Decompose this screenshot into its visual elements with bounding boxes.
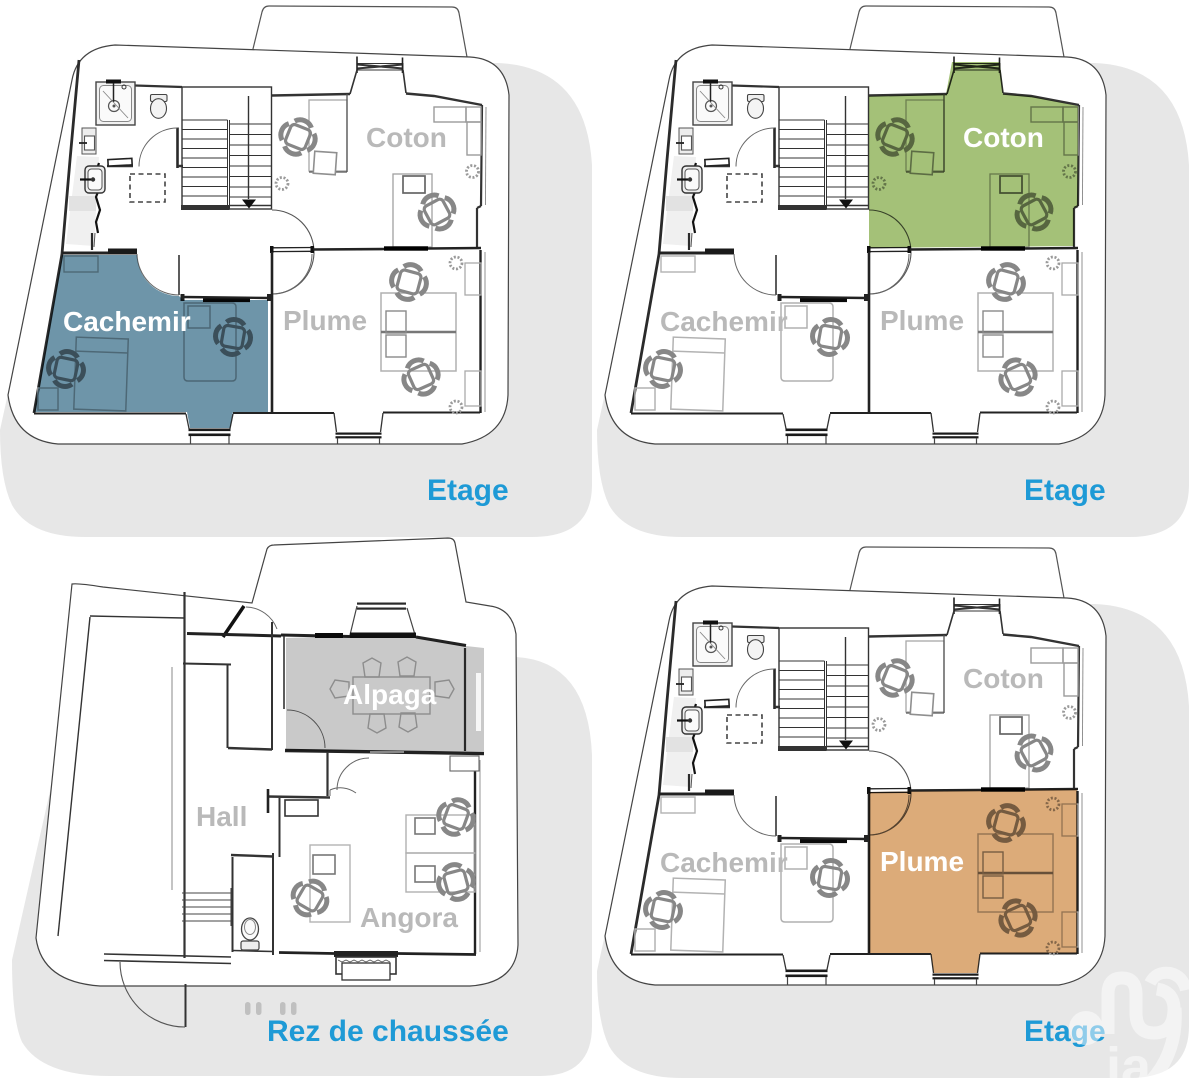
svg-text:Etage: Etage xyxy=(427,474,509,507)
svg-text:Rez de chaussée: Rez de chaussée xyxy=(267,1015,509,1048)
svg-text:Angora: Angora xyxy=(360,902,458,933)
svg-text:Hall: Hall xyxy=(196,801,247,832)
svg-text:Cachemir: Cachemir xyxy=(660,847,788,878)
svg-text:Coton: Coton xyxy=(963,122,1044,153)
svg-text:Coton: Coton xyxy=(963,663,1044,694)
svg-text:Plume: Plume xyxy=(880,846,964,877)
svg-text:ia: ia xyxy=(1106,1037,1152,1080)
svg-text:Plume: Plume xyxy=(283,305,367,336)
svg-text:Plume: Plume xyxy=(880,305,964,336)
svg-text:Cachemir: Cachemir xyxy=(660,306,788,337)
svg-text:Coton: Coton xyxy=(366,122,447,153)
svg-text:Etage: Etage xyxy=(1024,474,1106,507)
svg-text:Alpaga: Alpaga xyxy=(343,679,437,710)
svg-text:Cachemir: Cachemir xyxy=(63,306,191,337)
